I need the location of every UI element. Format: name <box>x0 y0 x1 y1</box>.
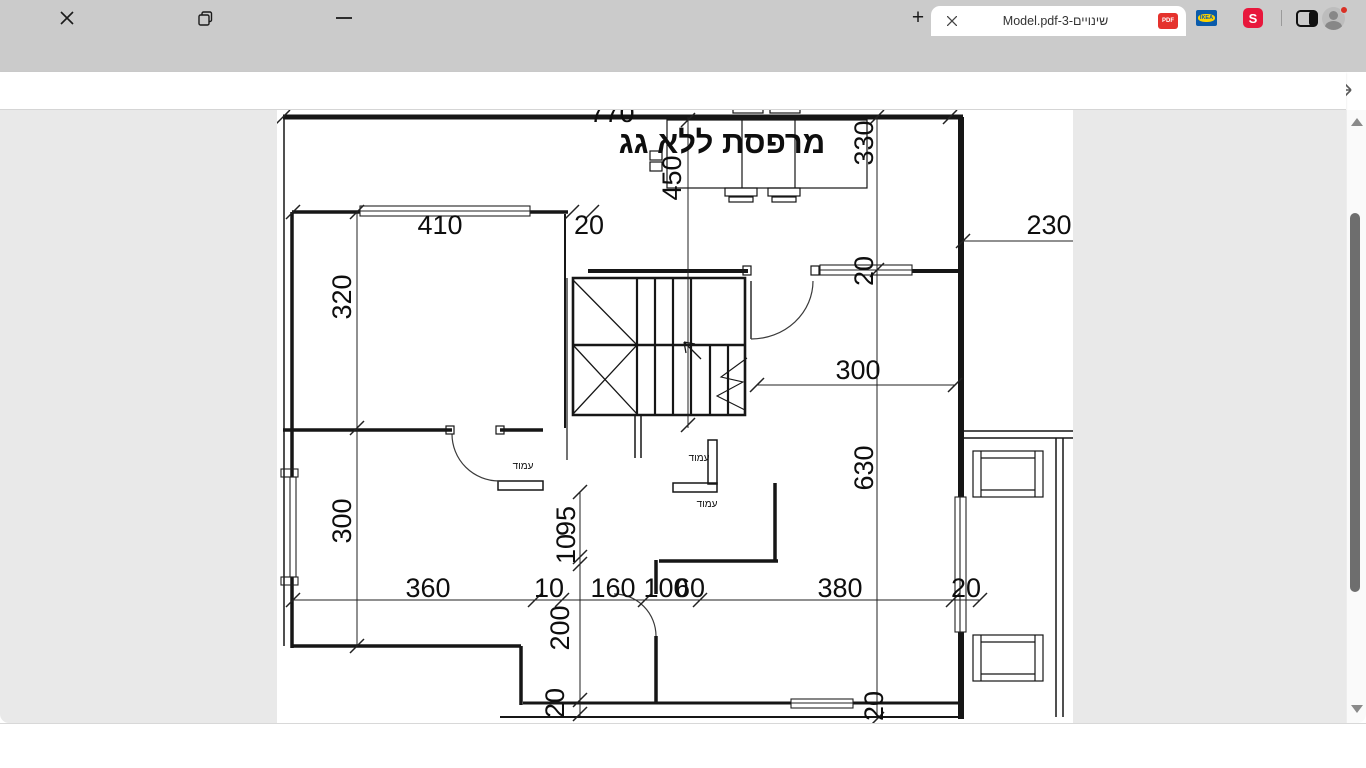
restore-icon <box>198 11 213 26</box>
desktop-strip <box>0 723 1366 768</box>
door-arc <box>452 434 499 481</box>
dimension-label: 20 <box>849 256 879 286</box>
minimize-icon <box>336 16 352 20</box>
tab-close-icon[interactable] <box>947 16 957 26</box>
viewer-background: מרפסת ללא גג עמוד עמוד עמוד 410 20 230 4… <box>0 110 1346 723</box>
scrollbar-thumb[interactable] <box>1350 213 1360 592</box>
stair-break-line <box>717 358 747 410</box>
pdf-file-icon: PDF <box>1158 13 1178 29</box>
dimension-label: 10 <box>551 534 581 564</box>
dimension-label: 300 <box>327 498 357 543</box>
active-tab[interactable]: שינויים-3-Model.pdf PDF <box>931 6 1186 36</box>
dimension-label: 20 <box>574 210 604 240</box>
tab-title: שינויים-3-Model.pdf <box>957 14 1154 28</box>
door-arc <box>751 281 813 339</box>
profile-notification-dot <box>1340 6 1348 14</box>
dimension-label: 410 <box>417 210 462 240</box>
dimension-label: 60 <box>675 573 705 603</box>
ikea-tab-icon[interactable]: IKEA <box>1196 10 1217 26</box>
dimension-label: 320 <box>327 274 357 319</box>
dimension-label: 95 <box>551 506 581 536</box>
pdf-toolbar: מתוך 1 + − שאל את Copilot a A צייר <box>0 72 1346 110</box>
dimension-label: 360 <box>405 573 450 603</box>
floor-plan-drawing: מרפסת ללא גג עמוד עמוד עמוד 410 20 230 4… <box>277 110 1073 723</box>
dimension-label: 380 <box>817 573 862 603</box>
ikea-label: IKEA <box>1198 14 1215 22</box>
pdf-page[interactable]: מרפסת ללא גג עמוד עמוד עמוד 410 20 230 4… <box>277 110 1073 723</box>
dimension-label: 330 <box>849 120 879 165</box>
tab-preview-icon <box>1296 10 1318 27</box>
column-label: עמוד <box>697 499 718 510</box>
title-bar: + שינויים-3-Model.pdf PDF IKEA S <box>0 0 1366 36</box>
dimension-label: 160 <box>590 573 635 603</box>
tab-preview-button[interactable] <box>1296 10 1318 32</box>
address-row: ••• D:/⁨גרא⁩%20⁨בן⁩%20⁨מוריה⁩/Documents/… <box>0 36 1366 72</box>
window-close-button[interactable] <box>47 0 87 36</box>
dimension-label: 300 <box>835 355 880 385</box>
column-label: עמוד <box>689 453 710 464</box>
dimension-label: 20 <box>540 688 570 718</box>
staircase <box>567 278 747 460</box>
avatar-head <box>1329 11 1338 20</box>
dimension-label: 770 <box>589 110 634 128</box>
dimension-label: 20 <box>859 691 889 721</box>
dimension-label: 450 <box>657 155 687 200</box>
dimension-ticks <box>277 110 987 723</box>
s-label: S <box>1249 11 1258 26</box>
dimension-lines <box>277 110 1073 723</box>
chair <box>725 188 757 196</box>
close-icon <box>60 11 74 25</box>
avatar-body <box>1325 21 1342 30</box>
divider <box>1281 10 1282 26</box>
pdf-viewer-area: מרפסת ללא גג עמוד עמוד עמוד 410 20 230 4… <box>0 110 1366 723</box>
vertical-scrollbar[interactable] <box>1346 110 1366 723</box>
window-restore-button[interactable] <box>185 0 225 36</box>
plan-columns <box>498 415 717 492</box>
scroll-down-arrow[interactable] <box>1351 705 1363 713</box>
dimension-label: 10 <box>534 573 564 603</box>
column-label: עמוד <box>513 461 534 472</box>
scroll-up-arrow[interactable] <box>1351 118 1363 126</box>
dimension-label: 20 <box>951 573 981 603</box>
chair <box>768 188 800 196</box>
dimension-label: 230 <box>1026 210 1071 240</box>
window-minimize-button[interactable] <box>324 0 364 36</box>
dimension-label: 630 <box>849 445 879 490</box>
s-extension-icon[interactable]: S <box>1243 8 1263 28</box>
room-title: מרפסת ללא גג <box>619 125 825 160</box>
dimension-label: 200 <box>545 605 575 650</box>
